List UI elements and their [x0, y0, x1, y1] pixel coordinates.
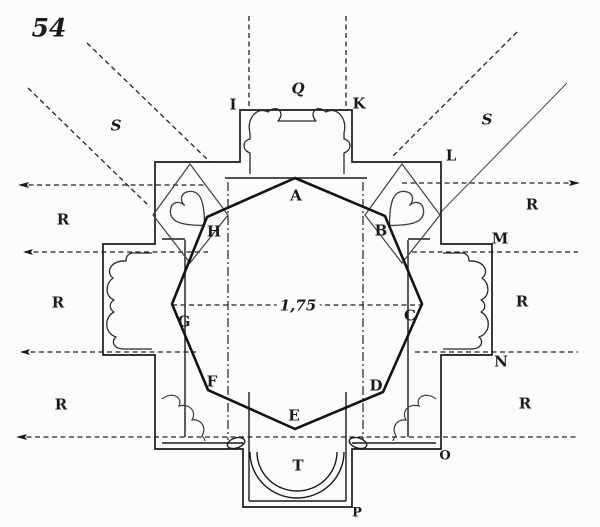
left-arm-niche	[107, 253, 152, 349]
label-octagon-vertex-f: F	[207, 375, 218, 390]
diag-line-tl-inner	[28, 88, 150, 207]
corner-fan-bottom-left	[162, 395, 205, 441]
label-region-r-right-2: R	[516, 295, 528, 310]
label-point-m: M	[492, 232, 509, 247]
label-octagon-vertex-h: H	[207, 225, 221, 240]
label-s-right: S	[482, 113, 493, 128]
label-region-r-right-3: R	[519, 397, 531, 412]
label-octagon-vertex-c: C	[404, 309, 416, 324]
label-region-r-left-2: R	[52, 296, 64, 311]
label-apse-t: T	[292, 459, 303, 474]
engraved-plan-plate: 54 1,75 S S I Q K L M N O P R R R R R R …	[0, 0, 600, 527]
label-octagon-vertex-b: B	[375, 224, 388, 239]
label-point-k: K	[352, 97, 365, 112]
diag-line-tr-solid	[440, 83, 567, 213]
label-point-o: O	[439, 450, 450, 463]
label-point-i: I	[229, 98, 236, 113]
label-octagon-vertex-e: E	[288, 409, 299, 424]
label-octagon-vertex-g: G	[178, 315, 191, 330]
label-point-l: L	[446, 149, 457, 164]
corner-fan-bottom-right	[393, 395, 436, 441]
arrowhead-right-1	[569, 180, 580, 186]
dimension-text: 1,75	[277, 299, 320, 314]
top-arm-niche	[244, 109, 350, 174]
label-region-r-left-1: R	[57, 213, 69, 228]
arrowhead-left-4	[16, 434, 27, 440]
label-octagon-vertex-a: A	[290, 189, 302, 204]
label-region-r-left-3: R	[55, 398, 67, 413]
label-s-left: S	[111, 119, 122, 134]
label-point-p: P	[352, 507, 362, 520]
arrowhead-left-1	[18, 182, 29, 188]
diag-line-tl-outer	[87, 43, 210, 162]
diag-line-tr-outer	[391, 32, 517, 158]
label-point-q: Q	[291, 82, 304, 97]
label-region-r-right-1: R	[526, 198, 538, 213]
label-point-n: N	[494, 355, 508, 370]
label-octagon-vertex-d: D	[369, 379, 382, 394]
right-arm-niche	[443, 253, 488, 349]
figure-number: 54	[32, 16, 67, 41]
arrowhead-left-2	[23, 249, 33, 255]
arrowhead-left-3	[20, 349, 30, 355]
